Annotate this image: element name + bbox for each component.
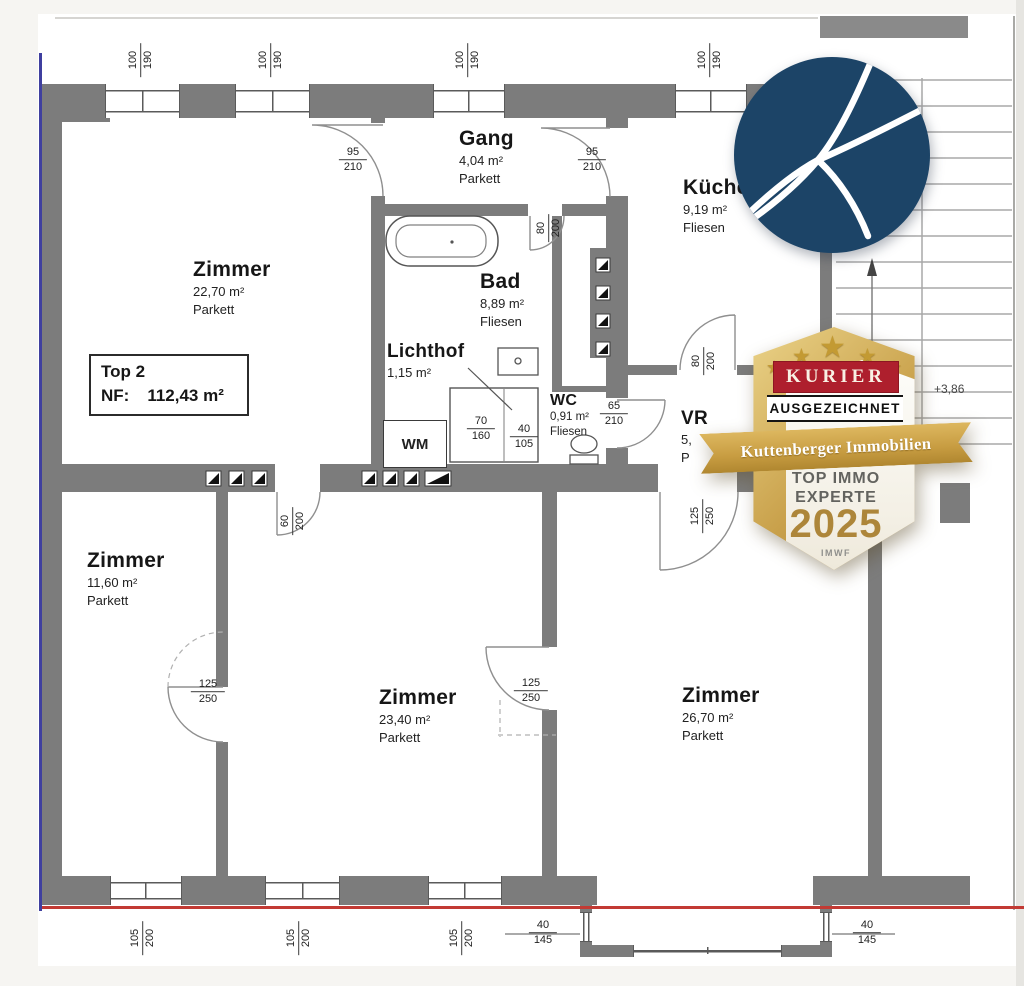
chimney-wall xyxy=(590,248,606,358)
right-margin xyxy=(1016,0,1024,986)
room-label-gang: Gang 4,04 m² Parkett xyxy=(459,127,514,187)
dim-window: 100190 xyxy=(126,43,156,77)
window xyxy=(235,84,310,118)
dim-door: 95210 xyxy=(339,145,367,175)
kuttenberger-k-logo xyxy=(734,57,930,253)
dim-door: 60200 xyxy=(278,507,308,535)
door-opening xyxy=(606,128,628,196)
door-opening xyxy=(275,464,320,492)
window xyxy=(105,84,180,118)
dim-shaft: 70160 xyxy=(467,414,495,444)
dim-window: 100190 xyxy=(695,43,725,77)
dim-window: 105200 xyxy=(128,921,158,955)
award-label-box: AUSGEZEICHNET xyxy=(767,395,903,422)
dim-door: 65210 xyxy=(600,399,628,429)
unit-info-box: Top 2 NF: 112,43 m² xyxy=(89,354,249,416)
window xyxy=(265,876,340,905)
bay-side-window xyxy=(820,912,832,942)
blue-reference-line xyxy=(39,53,42,911)
floorplan-image: Zimmer 22,70 m² Parkett Gang 4,04 m² Par… xyxy=(0,0,1024,986)
dim-window: 40145 xyxy=(529,918,557,948)
room-label-zimmer-right: Zimmer 26,70 m² Parkett xyxy=(682,684,760,744)
dim-window: 100190 xyxy=(453,43,483,77)
dim-window: 105200 xyxy=(284,921,314,955)
dim-door: 125250 xyxy=(514,676,548,706)
top-edge-line xyxy=(55,17,818,19)
window xyxy=(433,84,505,118)
badge-title-line1: TOP IMMO xyxy=(700,470,972,488)
nf-label: NF: xyxy=(101,386,129,406)
window xyxy=(428,876,502,905)
wall xyxy=(371,204,608,216)
bay-side-window xyxy=(580,912,592,942)
dim-door: 80200 xyxy=(534,214,564,242)
door-opening xyxy=(371,123,385,196)
washing-machine: WM xyxy=(383,420,447,468)
red-reference-line xyxy=(40,906,1024,909)
room-label-lichthof: Lichthof 1,15 m² xyxy=(387,341,464,381)
bay-opening xyxy=(597,876,813,905)
award-badge: ★ ★ ★ ★ ★ KURIER AUSGEZEICHNET Kuttenber… xyxy=(700,300,972,572)
room-label-bad: Bad 8,89 m² Fliesen xyxy=(480,270,524,330)
dim-window: 100190 xyxy=(256,43,286,77)
wall xyxy=(552,216,562,392)
top-right-wall-band xyxy=(820,16,968,38)
kurier-brand-box: KURIER xyxy=(773,361,899,393)
window xyxy=(110,876,182,905)
room-label-zimmer-left: Zimmer 11,60 m² Parkett xyxy=(87,549,165,609)
right-boundary-line xyxy=(1013,16,1015,910)
dim-shaft: 40105 xyxy=(510,422,538,452)
nf-value: 112,43 m² xyxy=(147,386,224,406)
badge-year: 2025 xyxy=(700,503,972,545)
dim-window: 40145 xyxy=(853,918,881,948)
wall xyxy=(40,84,62,905)
room-label-wc: WC 0,91 m² Fliesen xyxy=(550,392,589,439)
bay-window xyxy=(633,945,782,957)
badge-source: IMWF xyxy=(700,548,972,558)
k-monogram-icon xyxy=(734,57,930,253)
star-icon: ★ xyxy=(819,330,846,365)
dim-window: 105200 xyxy=(447,921,477,955)
room-label-zimmer-top: Zimmer 22,70 m² Parkett xyxy=(193,258,271,318)
window xyxy=(675,84,747,118)
dim-door: 125250 xyxy=(191,677,225,707)
room-label-zimmer-mid: Zimmer 23,40 m² Parkett xyxy=(379,686,457,746)
company-ribbon: Kuttenberger Immobilien xyxy=(699,422,972,474)
dim-door: 95210 xyxy=(578,145,606,175)
